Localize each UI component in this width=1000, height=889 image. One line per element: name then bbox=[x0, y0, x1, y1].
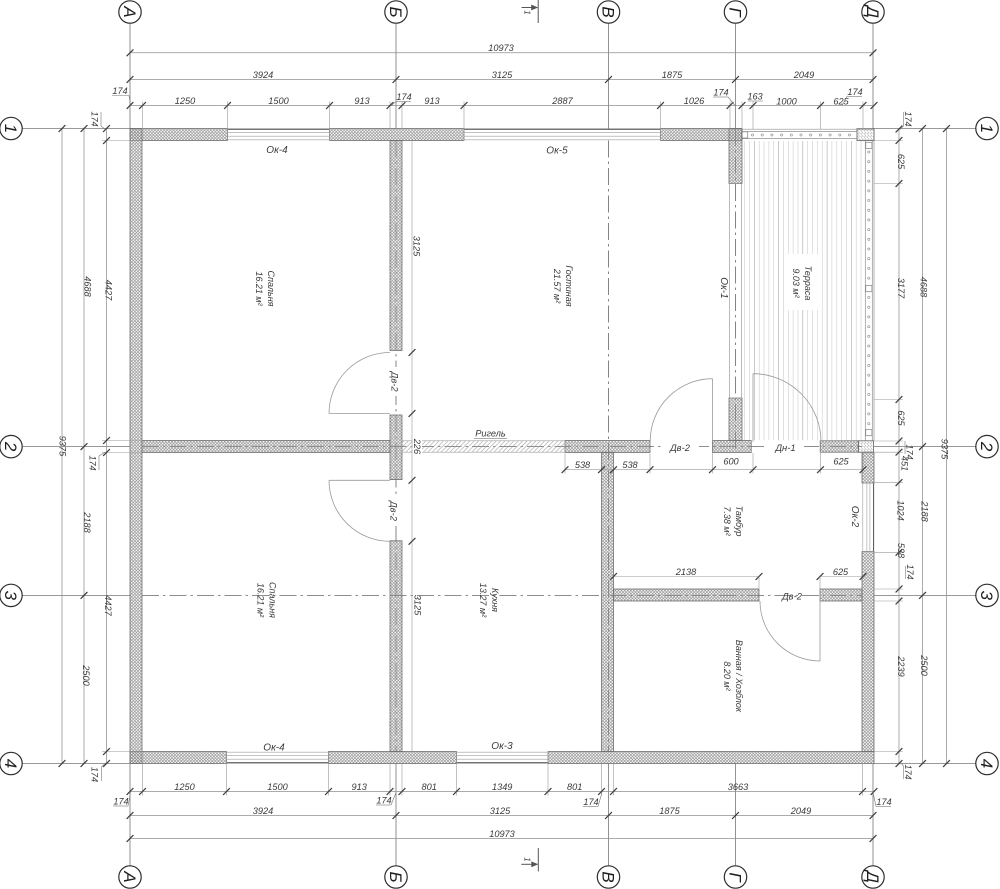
svg-text:7.38 м²: 7.38 м² bbox=[722, 506, 732, 536]
svg-text:2239: 2239 bbox=[896, 655, 906, 676]
svg-text:174: 174 bbox=[112, 86, 127, 96]
svg-text:А: А bbox=[120, 5, 139, 17]
svg-text:Дн-1: Дн-1 bbox=[774, 442, 795, 453]
svg-text:913: 913 bbox=[354, 96, 370, 106]
svg-text:538: 538 bbox=[896, 543, 906, 559]
svg-text:21.57 м²: 21.57 м² bbox=[552, 268, 562, 304]
svg-text:174: 174 bbox=[396, 92, 411, 102]
svg-text:1500: 1500 bbox=[267, 782, 288, 792]
svg-text:1500: 1500 bbox=[268, 96, 289, 106]
svg-text:4: 4 bbox=[1, 759, 20, 768]
svg-text:Кухня: Кухня bbox=[490, 588, 500, 612]
svg-text:2049: 2049 bbox=[790, 806, 811, 816]
svg-text:Дв-2: Дв-2 bbox=[781, 591, 803, 602]
svg-text:Д: Д bbox=[863, 4, 882, 18]
svg-text:1026: 1026 bbox=[684, 96, 705, 106]
svg-text:174: 174 bbox=[903, 764, 913, 779]
svg-text:174: 174 bbox=[90, 767, 100, 782]
svg-text:1: 1 bbox=[523, 10, 532, 14]
svg-text:Д: Д bbox=[863, 869, 882, 883]
svg-text:1: 1 bbox=[523, 857, 532, 861]
svg-text:3924: 3924 bbox=[253, 806, 273, 816]
svg-text:2: 2 bbox=[1, 441, 20, 452]
svg-text:2049: 2049 bbox=[793, 70, 814, 80]
svg-text:174: 174 bbox=[713, 88, 728, 98]
svg-text:Дв-2: Дв-2 bbox=[389, 500, 400, 522]
svg-text:174: 174 bbox=[376, 796, 391, 806]
svg-text:1024: 1024 bbox=[895, 500, 905, 520]
svg-text:2188: 2188 bbox=[920, 500, 930, 522]
svg-text:4688: 4688 bbox=[83, 276, 93, 297]
svg-text:Дв-2: Дв-2 bbox=[390, 371, 401, 393]
svg-text:3: 3 bbox=[977, 591, 996, 601]
svg-text:Спальня: Спальня bbox=[266, 271, 276, 307]
svg-text:600: 600 bbox=[723, 457, 739, 467]
svg-text:1250: 1250 bbox=[174, 782, 195, 792]
svg-text:3125: 3125 bbox=[490, 806, 511, 816]
svg-text:174: 174 bbox=[876, 797, 891, 807]
svg-text:1875: 1875 bbox=[659, 806, 680, 816]
svg-text:3663: 3663 bbox=[728, 782, 749, 792]
svg-text:625: 625 bbox=[833, 567, 849, 577]
svg-text:А: А bbox=[120, 870, 139, 882]
svg-text:В: В bbox=[598, 871, 617, 882]
svg-text:1875: 1875 bbox=[662, 70, 683, 80]
svg-text:Дв-2: Дв-2 bbox=[669, 442, 691, 453]
svg-text:174: 174 bbox=[903, 111, 913, 126]
svg-text:3: 3 bbox=[1, 591, 20, 601]
svg-text:174: 174 bbox=[113, 797, 128, 807]
svg-text:16.21 м²: 16.21 м² bbox=[254, 271, 264, 306]
svg-text:1250: 1250 bbox=[175, 96, 196, 106]
svg-text:913: 913 bbox=[424, 96, 440, 106]
svg-text:625: 625 bbox=[833, 457, 849, 467]
svg-text:174: 174 bbox=[90, 111, 100, 126]
svg-text:4688: 4688 bbox=[919, 277, 929, 298]
svg-text:13.27 м²: 13.27 м² bbox=[478, 583, 488, 618]
svg-text:Ок-4: Ок-4 bbox=[266, 145, 288, 156]
svg-text:174: 174 bbox=[88, 455, 98, 470]
svg-text:174: 174 bbox=[905, 564, 915, 579]
svg-text:9.03 м²: 9.03 м² bbox=[791, 268, 801, 298]
svg-text:2188: 2188 bbox=[82, 511, 92, 533]
svg-text:1: 1 bbox=[977, 124, 996, 133]
svg-text:Ванная / Хозблок: Ванная / Хозблок bbox=[734, 640, 744, 713]
svg-text:3177: 3177 bbox=[896, 278, 906, 299]
svg-text:3125: 3125 bbox=[413, 595, 423, 616]
svg-text:Ок-5: Ок-5 bbox=[546, 145, 568, 156]
svg-text:163: 163 bbox=[747, 92, 763, 102]
svg-text:174: 174 bbox=[583, 797, 598, 807]
svg-text:1349: 1349 bbox=[492, 782, 512, 792]
svg-text:10973: 10973 bbox=[488, 43, 514, 53]
svg-text:625: 625 bbox=[896, 410, 906, 426]
svg-text:Ок-4: Ок-4 bbox=[263, 743, 285, 754]
svg-text:9375: 9375 bbox=[940, 439, 950, 460]
svg-text:Ок-1: Ок-1 bbox=[718, 277, 729, 298]
svg-text:3125: 3125 bbox=[412, 236, 422, 257]
svg-text:В: В bbox=[598, 6, 617, 17]
svg-text:4427: 4427 bbox=[103, 595, 113, 616]
svg-text:625: 625 bbox=[896, 154, 906, 170]
svg-text:801: 801 bbox=[422, 782, 437, 792]
svg-text:Ригель: Ригель bbox=[475, 429, 506, 439]
svg-text:174: 174 bbox=[847, 87, 862, 97]
svg-text:1000: 1000 bbox=[776, 96, 797, 106]
svg-text:Ок-3: Ок-3 bbox=[491, 741, 513, 752]
svg-text:16.21 м²: 16.21 м² bbox=[256, 583, 266, 618]
svg-text:3924: 3924 bbox=[253, 70, 273, 80]
svg-text:2: 2 bbox=[977, 441, 996, 452]
svg-text:226: 226 bbox=[412, 438, 422, 455]
svg-text:Спальня: Спальня bbox=[268, 582, 278, 618]
svg-text:Терраса: Терраса bbox=[803, 266, 813, 301]
svg-text:174: 174 bbox=[905, 444, 915, 459]
svg-text:4: 4 bbox=[977, 759, 996, 768]
svg-text:625: 625 bbox=[833, 96, 849, 106]
svg-text:Б: Б bbox=[386, 6, 405, 17]
svg-text:Гостиная: Гостиная bbox=[564, 265, 574, 306]
svg-text:Ок-2: Ок-2 bbox=[849, 506, 860, 528]
svg-text:8.20 м²: 8.20 м² bbox=[722, 661, 732, 691]
svg-text:3125: 3125 bbox=[492, 70, 513, 80]
svg-text:1: 1 bbox=[1, 124, 20, 133]
svg-text:801: 801 bbox=[567, 782, 582, 792]
svg-text:Б: Б bbox=[386, 871, 405, 882]
svg-text:538: 538 bbox=[575, 460, 591, 470]
svg-text:Тамбур: Тамбур bbox=[734, 506, 744, 537]
svg-text:9375: 9375 bbox=[58, 436, 68, 457]
svg-text:2138: 2138 bbox=[675, 567, 697, 577]
svg-text:2500: 2500 bbox=[919, 654, 929, 676]
svg-text:2887: 2887 bbox=[551, 96, 573, 106]
svg-text:538: 538 bbox=[622, 460, 638, 470]
svg-text:4427: 4427 bbox=[103, 280, 113, 301]
svg-text:10973: 10973 bbox=[489, 829, 515, 839]
svg-text:2500: 2500 bbox=[81, 664, 91, 686]
svg-text:913: 913 bbox=[352, 782, 368, 792]
